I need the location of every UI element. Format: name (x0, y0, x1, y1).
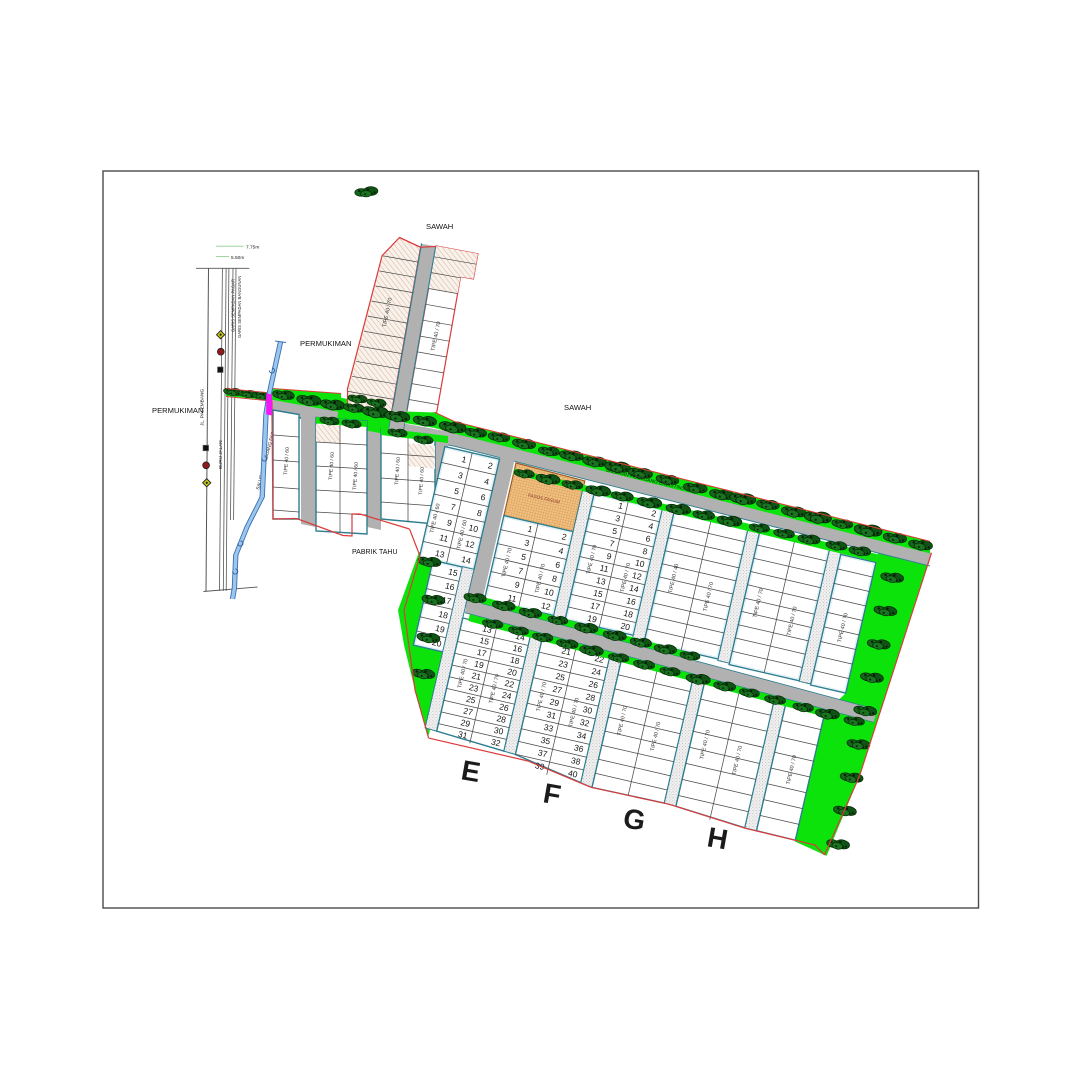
svg-text:5.50m: 5.50m (231, 255, 244, 261)
svg-text:SAWAH: SAWAH (564, 403, 591, 412)
svg-text:PERMUKIMAN: PERMUKIMAN (300, 339, 351, 348)
svg-text:GARIS SEMPADAN PAGAR: GARIS SEMPADAN PAGAR (230, 279, 235, 332)
svg-text:BURU JALAN: BURU JALAN (218, 440, 223, 469)
svg-text:GARIS SEMPADAN BANGUNAN: GARIS SEMPADAN BANGUNAN (237, 276, 242, 338)
svg-text:PERMUKIMAN: PERMUKIMAN (152, 406, 203, 415)
svg-text:SAWAH: SAWAH (426, 222, 453, 231)
svg-text:7.75m: 7.75m (246, 244, 259, 250)
svg-text:PABRIK TAHU: PABRIK TAHU (352, 549, 398, 556)
